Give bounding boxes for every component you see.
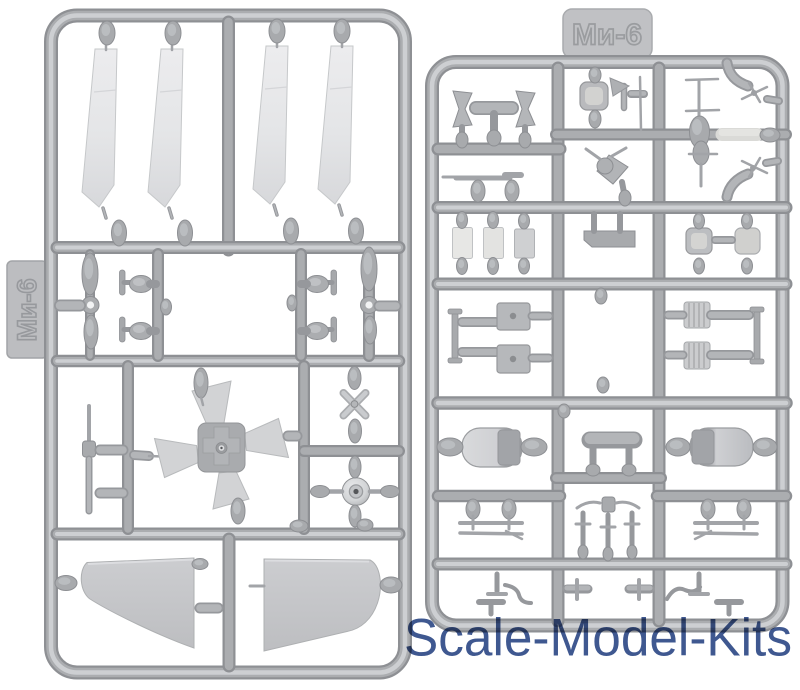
svg-text:Scale-Model-Kits: Scale-Model-Kits <box>404 609 792 668</box>
svg-text:Ми-6: Ми-6 <box>572 19 642 52</box>
svg-text:Ми-6: Ми-6 <box>12 278 42 341</box>
